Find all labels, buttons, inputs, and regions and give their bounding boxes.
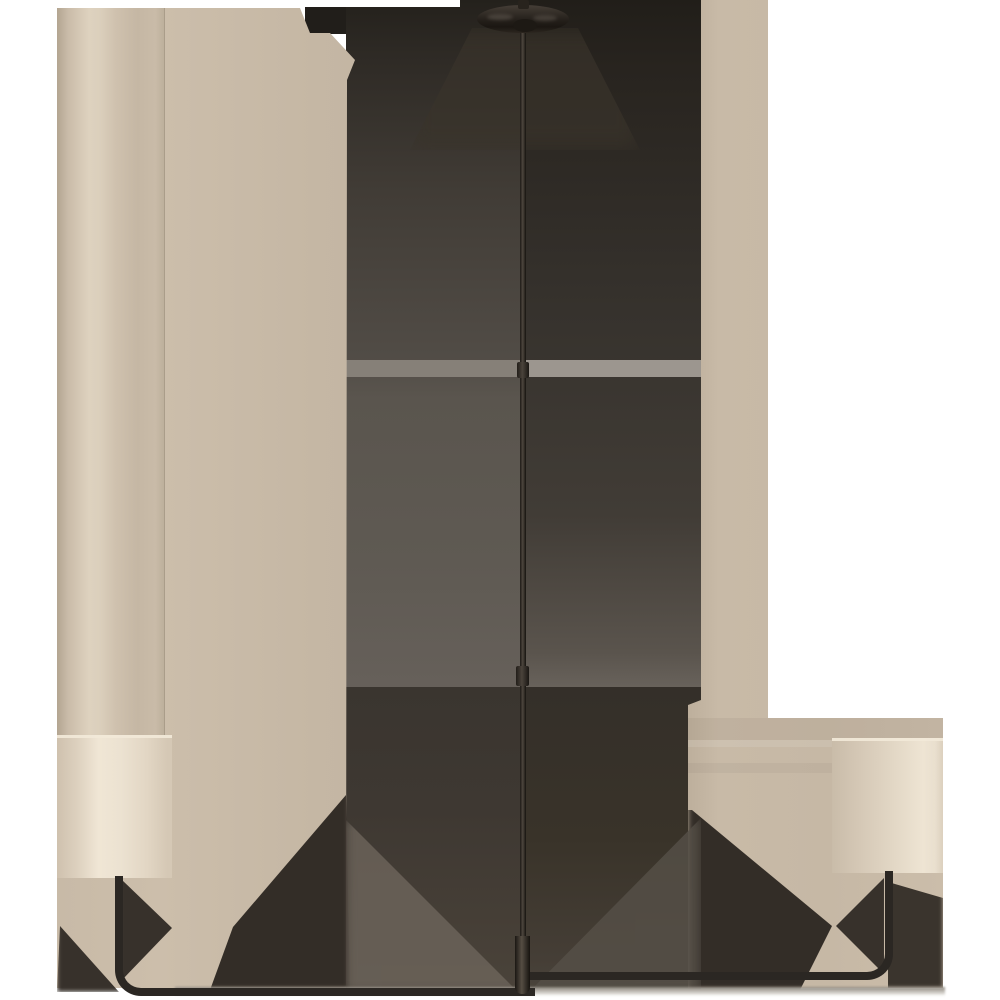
stem-coupler-lower	[516, 666, 529, 686]
canopy-hub	[513, 19, 537, 32]
left-shade-upper-cylinder	[57, 8, 165, 737]
canopy-stem-nub	[518, 0, 529, 9]
top-shadow-strip	[305, 6, 346, 34]
canopy-highlight	[487, 14, 513, 20]
center-socket	[515, 936, 530, 994]
backdrop-tonal-band	[688, 718, 943, 740]
stem-coupler-upper	[517, 362, 529, 378]
canopy-highlight	[533, 15, 557, 21]
stem-rod	[520, 28, 526, 938]
right-shade	[832, 738, 943, 873]
left-shade	[57, 735, 172, 878]
right-arm-and-bar	[523, 871, 893, 980]
product-photo	[0, 0, 1000, 1000]
top-white-margin	[300, 0, 460, 7]
left-arm-and-bar	[115, 876, 535, 996]
